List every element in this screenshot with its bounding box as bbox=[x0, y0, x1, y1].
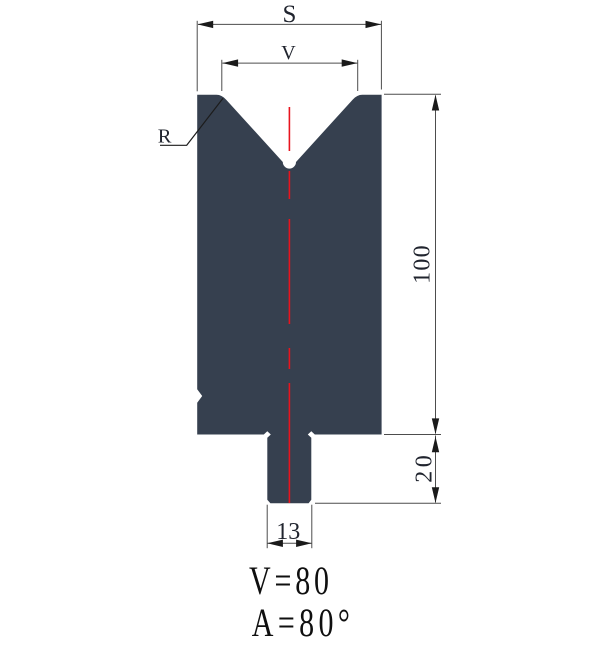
svg-text:R: R bbox=[158, 126, 172, 148]
svg-text:V=80: V=80 bbox=[249, 558, 329, 603]
svg-text:V: V bbox=[281, 42, 296, 64]
svg-text:S: S bbox=[283, 1, 297, 28]
svg-text:13: 13 bbox=[276, 519, 300, 545]
svg-text:100: 100 bbox=[410, 245, 436, 284]
